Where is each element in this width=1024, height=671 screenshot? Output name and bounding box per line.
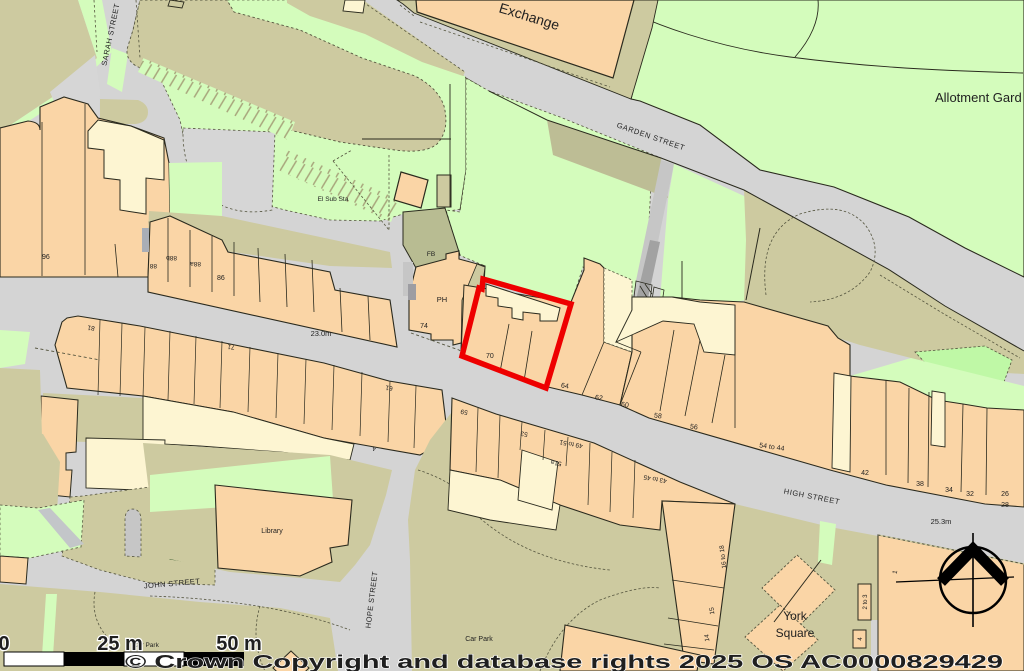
svg-text:61: 61 [385,383,394,391]
svg-text:62: 62 [594,394,603,402]
svg-text:38: 38 [916,481,924,488]
svg-text:Square: Square [776,626,815,640]
svg-text:15: 15 [709,606,717,614]
svg-text:88b: 88b [166,254,177,261]
svg-text:2 to 3: 2 to 3 [863,594,869,610]
svg-text:88a: 88a [190,260,201,267]
svg-text:34: 34 [945,487,953,494]
svg-text:Library: Library [261,528,283,535]
svg-text:60: 60 [620,401,629,409]
svg-text:56: 56 [689,423,698,431]
svg-text:32: 32 [966,491,974,498]
svg-text:96: 96 [42,254,50,261]
svg-text:PH: PH [437,295,447,304]
svg-text:Car Park: Car Park [465,636,493,643]
svg-text:© Crown Copyright and database: © Crown Copyright and database rights 20… [125,651,1003,671]
svg-text:25.3m: 25.3m [931,517,952,526]
svg-text:88: 88 [149,262,157,269]
svg-text:28: 28 [1001,502,1009,509]
svg-text:26: 26 [1001,491,1009,498]
svg-text:FB: FB [427,251,435,258]
svg-text:81: 81 [87,323,96,331]
svg-text:42: 42 [861,470,869,477]
svg-text:70: 70 [486,353,494,360]
svg-text:York: York [783,609,808,623]
svg-text:58: 58 [653,412,662,420]
svg-text:El Sub Sta: El Sub Sta [318,196,349,203]
svg-text:14: 14 [704,633,712,641]
svg-text:23.0m: 23.0m [311,329,332,338]
svg-text:74: 74 [420,323,428,330]
svg-text:86: 86 [217,275,225,282]
svg-text:71: 71 [227,342,236,350]
svg-text:64: 64 [560,382,569,390]
svg-text:0: 0 [0,633,10,655]
svg-text:Allotment Gard: Allotment Gard [935,90,1022,105]
